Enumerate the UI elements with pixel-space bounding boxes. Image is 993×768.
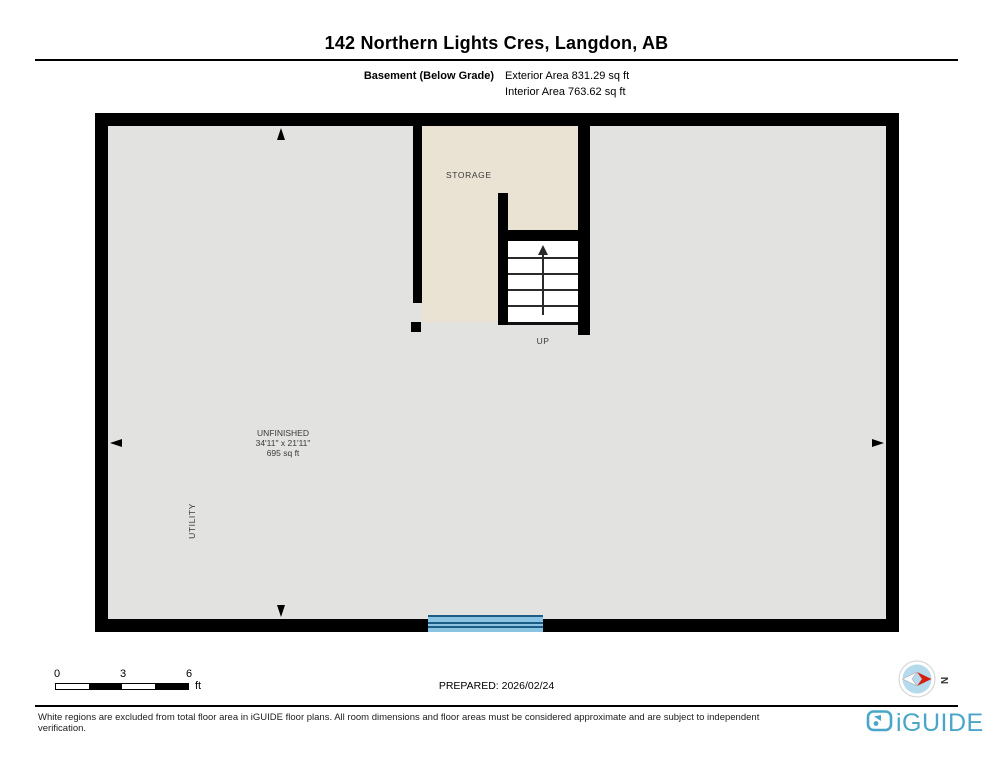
iguide-logo-icon bbox=[866, 707, 893, 739]
measure-arrow-right-icon bbox=[872, 439, 884, 447]
title-divider bbox=[35, 59, 958, 61]
north-label: N bbox=[938, 677, 949, 684]
stair-up-arrow bbox=[542, 254, 544, 315]
measure-arrow-left-icon bbox=[110, 439, 122, 447]
floor-name: Basement (Below Grade) bbox=[364, 68, 494, 84]
scale-tick-0: 0 bbox=[54, 668, 60, 680]
storage-room-label: STORAGE bbox=[446, 170, 492, 180]
floorplan-page: 142 Northern Lights Cres, Langdon, AB Ba… bbox=[0, 0, 993, 768]
storage-right-wall bbox=[578, 126, 590, 335]
window-pane-line bbox=[428, 626, 543, 628]
measure-arrow-down-icon bbox=[277, 605, 285, 617]
staircase bbox=[508, 241, 578, 325]
floor-subtitle: Basement (Below Grade) Exterior Area 831… bbox=[0, 68, 993, 100]
floor-plan: STORAGE UP UNFINISHED 34'11" x 21'11" 69… bbox=[95, 113, 899, 632]
unfinished-room-label: UNFINISHED 34'11" x 21'11" 695 sq ft bbox=[256, 428, 311, 458]
wall-post bbox=[411, 322, 421, 332]
scale-tick-6: 6 bbox=[186, 668, 192, 680]
area-summary: Exterior Area 831.29 sq ft Interior Area… bbox=[505, 68, 629, 100]
stair-up-label: UP bbox=[508, 336, 578, 346]
unfinished-name: UNFINISHED bbox=[256, 428, 311, 438]
page-title: 142 Northern Lights Cres, Langdon, AB bbox=[0, 33, 993, 54]
disclaimer-text: White regions are excluded from total fl… bbox=[38, 712, 798, 734]
iguide-logo-text: iGUIDE bbox=[896, 709, 984, 737]
prepared-date: PREPARED: 2026/02/24 bbox=[0, 680, 993, 692]
utility-label: UTILITY bbox=[187, 503, 197, 539]
measure-arrow-up-icon bbox=[277, 128, 285, 140]
stair-top-wall bbox=[498, 230, 590, 241]
compass-icon bbox=[898, 660, 936, 698]
interior-area: Interior Area 763.62 sq ft bbox=[505, 84, 629, 100]
unfinished-dimensions: 34'11" x 21'11" bbox=[256, 438, 311, 448]
footer-divider bbox=[35, 705, 958, 707]
scale-tick-3: 3 bbox=[120, 668, 126, 680]
unfinished-area: 695 sq ft bbox=[256, 448, 311, 458]
exterior-area: Exterior Area 831.29 sq ft bbox=[505, 68, 629, 84]
iguide-logo: iGUIDE bbox=[866, 707, 984, 739]
basement-window bbox=[428, 615, 543, 632]
storage-left-wall bbox=[413, 126, 422, 303]
window-pane-line bbox=[428, 622, 543, 624]
stair-left-wall bbox=[498, 193, 508, 325]
